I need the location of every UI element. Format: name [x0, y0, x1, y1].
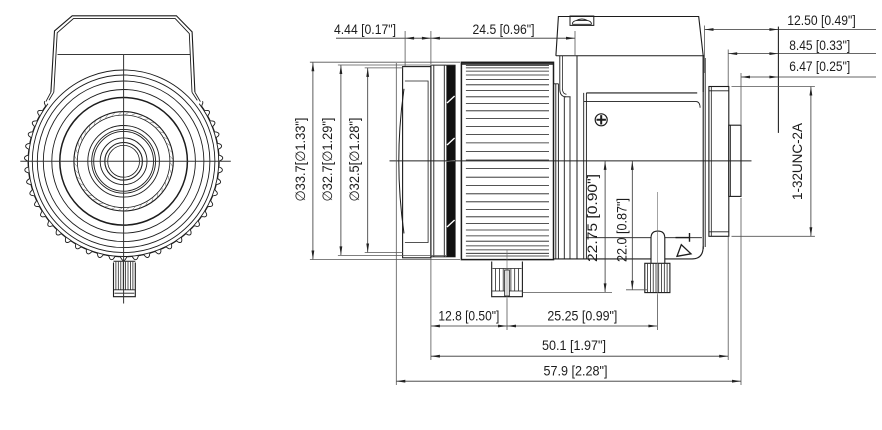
svg-text:8.45 [0.33"]: 8.45 [0.33"] — [789, 38, 850, 53]
svg-text:50.1 [1.97"]: 50.1 [1.97"] — [542, 338, 606, 353]
svg-text:∅33.7[∅1.33"]: ∅33.7[∅1.33"] — [293, 118, 308, 202]
svg-text:25.25 [0.99"]: 25.25 [0.99"] — [547, 309, 617, 324]
svg-text:57.9 [2.28"]: 57.9 [2.28"] — [544, 364, 608, 379]
svg-text:22.75 [0.90"]: 22.75 [0.90"] — [585, 174, 600, 262]
svg-text:6.47 [0.25"]: 6.47 [0.25"] — [789, 59, 850, 74]
svg-text:∅32.7[∅1.29"]: ∅32.7[∅1.29"] — [320, 118, 335, 202]
svg-text:22.0 [0.87"]: 22.0 [0.87"] — [615, 198, 630, 262]
svg-text:1-32UNC-2A: 1-32UNC-2A — [790, 123, 805, 200]
svg-text:4.44 [0.17"]: 4.44 [0.17"] — [334, 22, 396, 37]
svg-text:∅32.5[∅1.28"]: ∅32.5[∅1.28"] — [347, 118, 362, 202]
svg-text:12.8 [0.50"]: 12.8 [0.50"] — [438, 309, 499, 324]
svg-text:12.50 [0.49"]: 12.50 [0.49"] — [787, 13, 856, 28]
svg-text:24.5 [0.96"]: 24.5 [0.96"] — [473, 22, 535, 37]
